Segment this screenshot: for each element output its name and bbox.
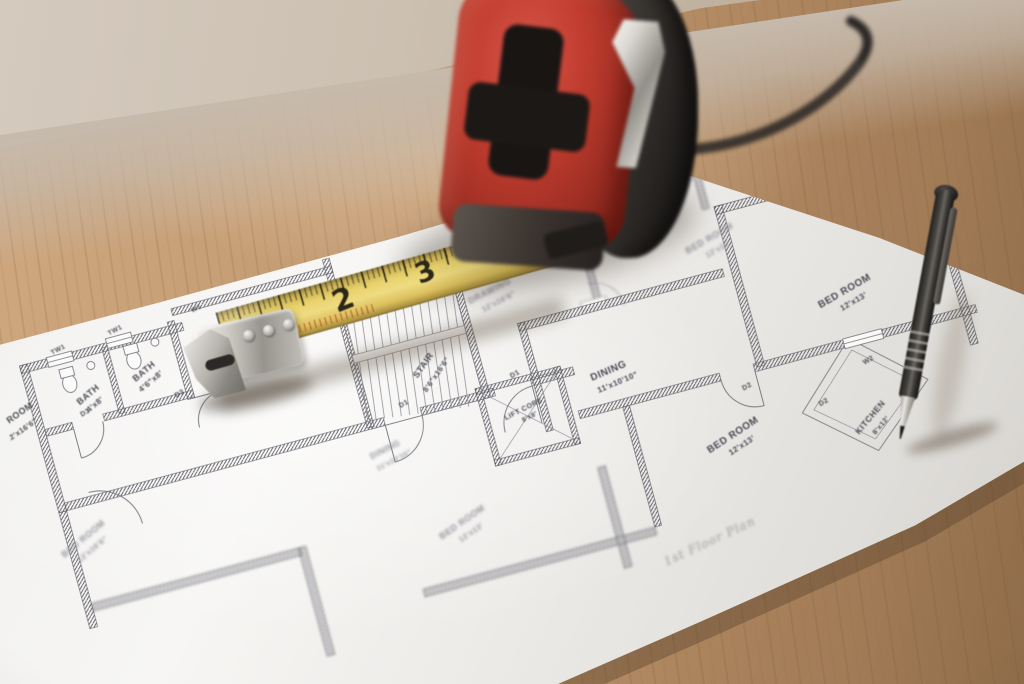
pen-metal-cone [894,395,917,430]
pen-grip-rings [903,324,930,375]
photo-scene: BATH 4'x8' BATH 4'6"x8' LIVING 11'x16'6"… [0,0,1024,684]
pen-tip [897,425,906,439]
tape-measure-body [0,0,1024,684]
